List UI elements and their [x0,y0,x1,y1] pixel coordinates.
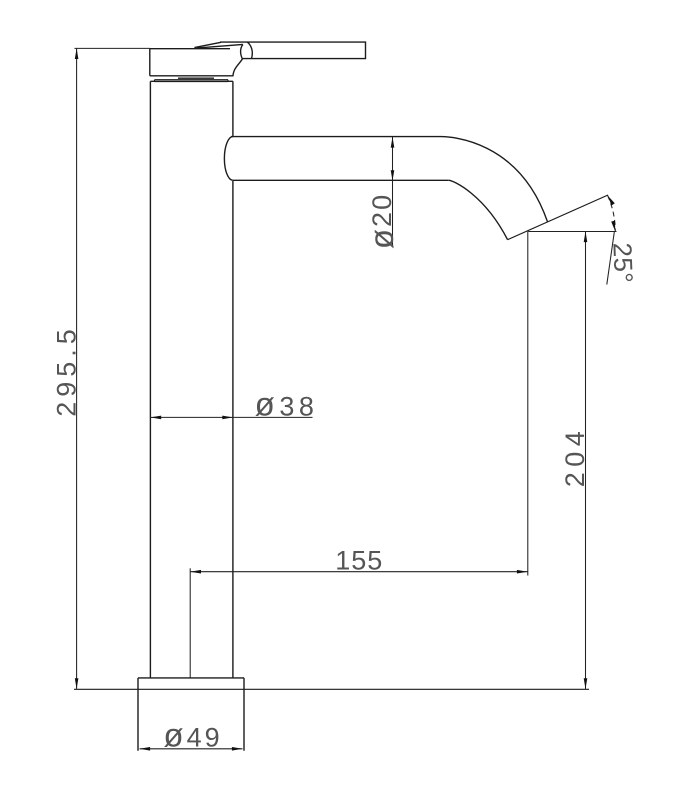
svg-text:ø49: ø49 [163,717,222,754]
svg-text:25°: 25° [607,242,638,284]
svg-text:204: 204 [560,426,590,488]
svg-text:295.5: 295.5 [52,324,82,417]
svg-text:155: 155 [335,546,383,576]
svg-text:ø38: ø38 [255,386,319,423]
svg-text:ø20: ø20 [363,193,400,249]
